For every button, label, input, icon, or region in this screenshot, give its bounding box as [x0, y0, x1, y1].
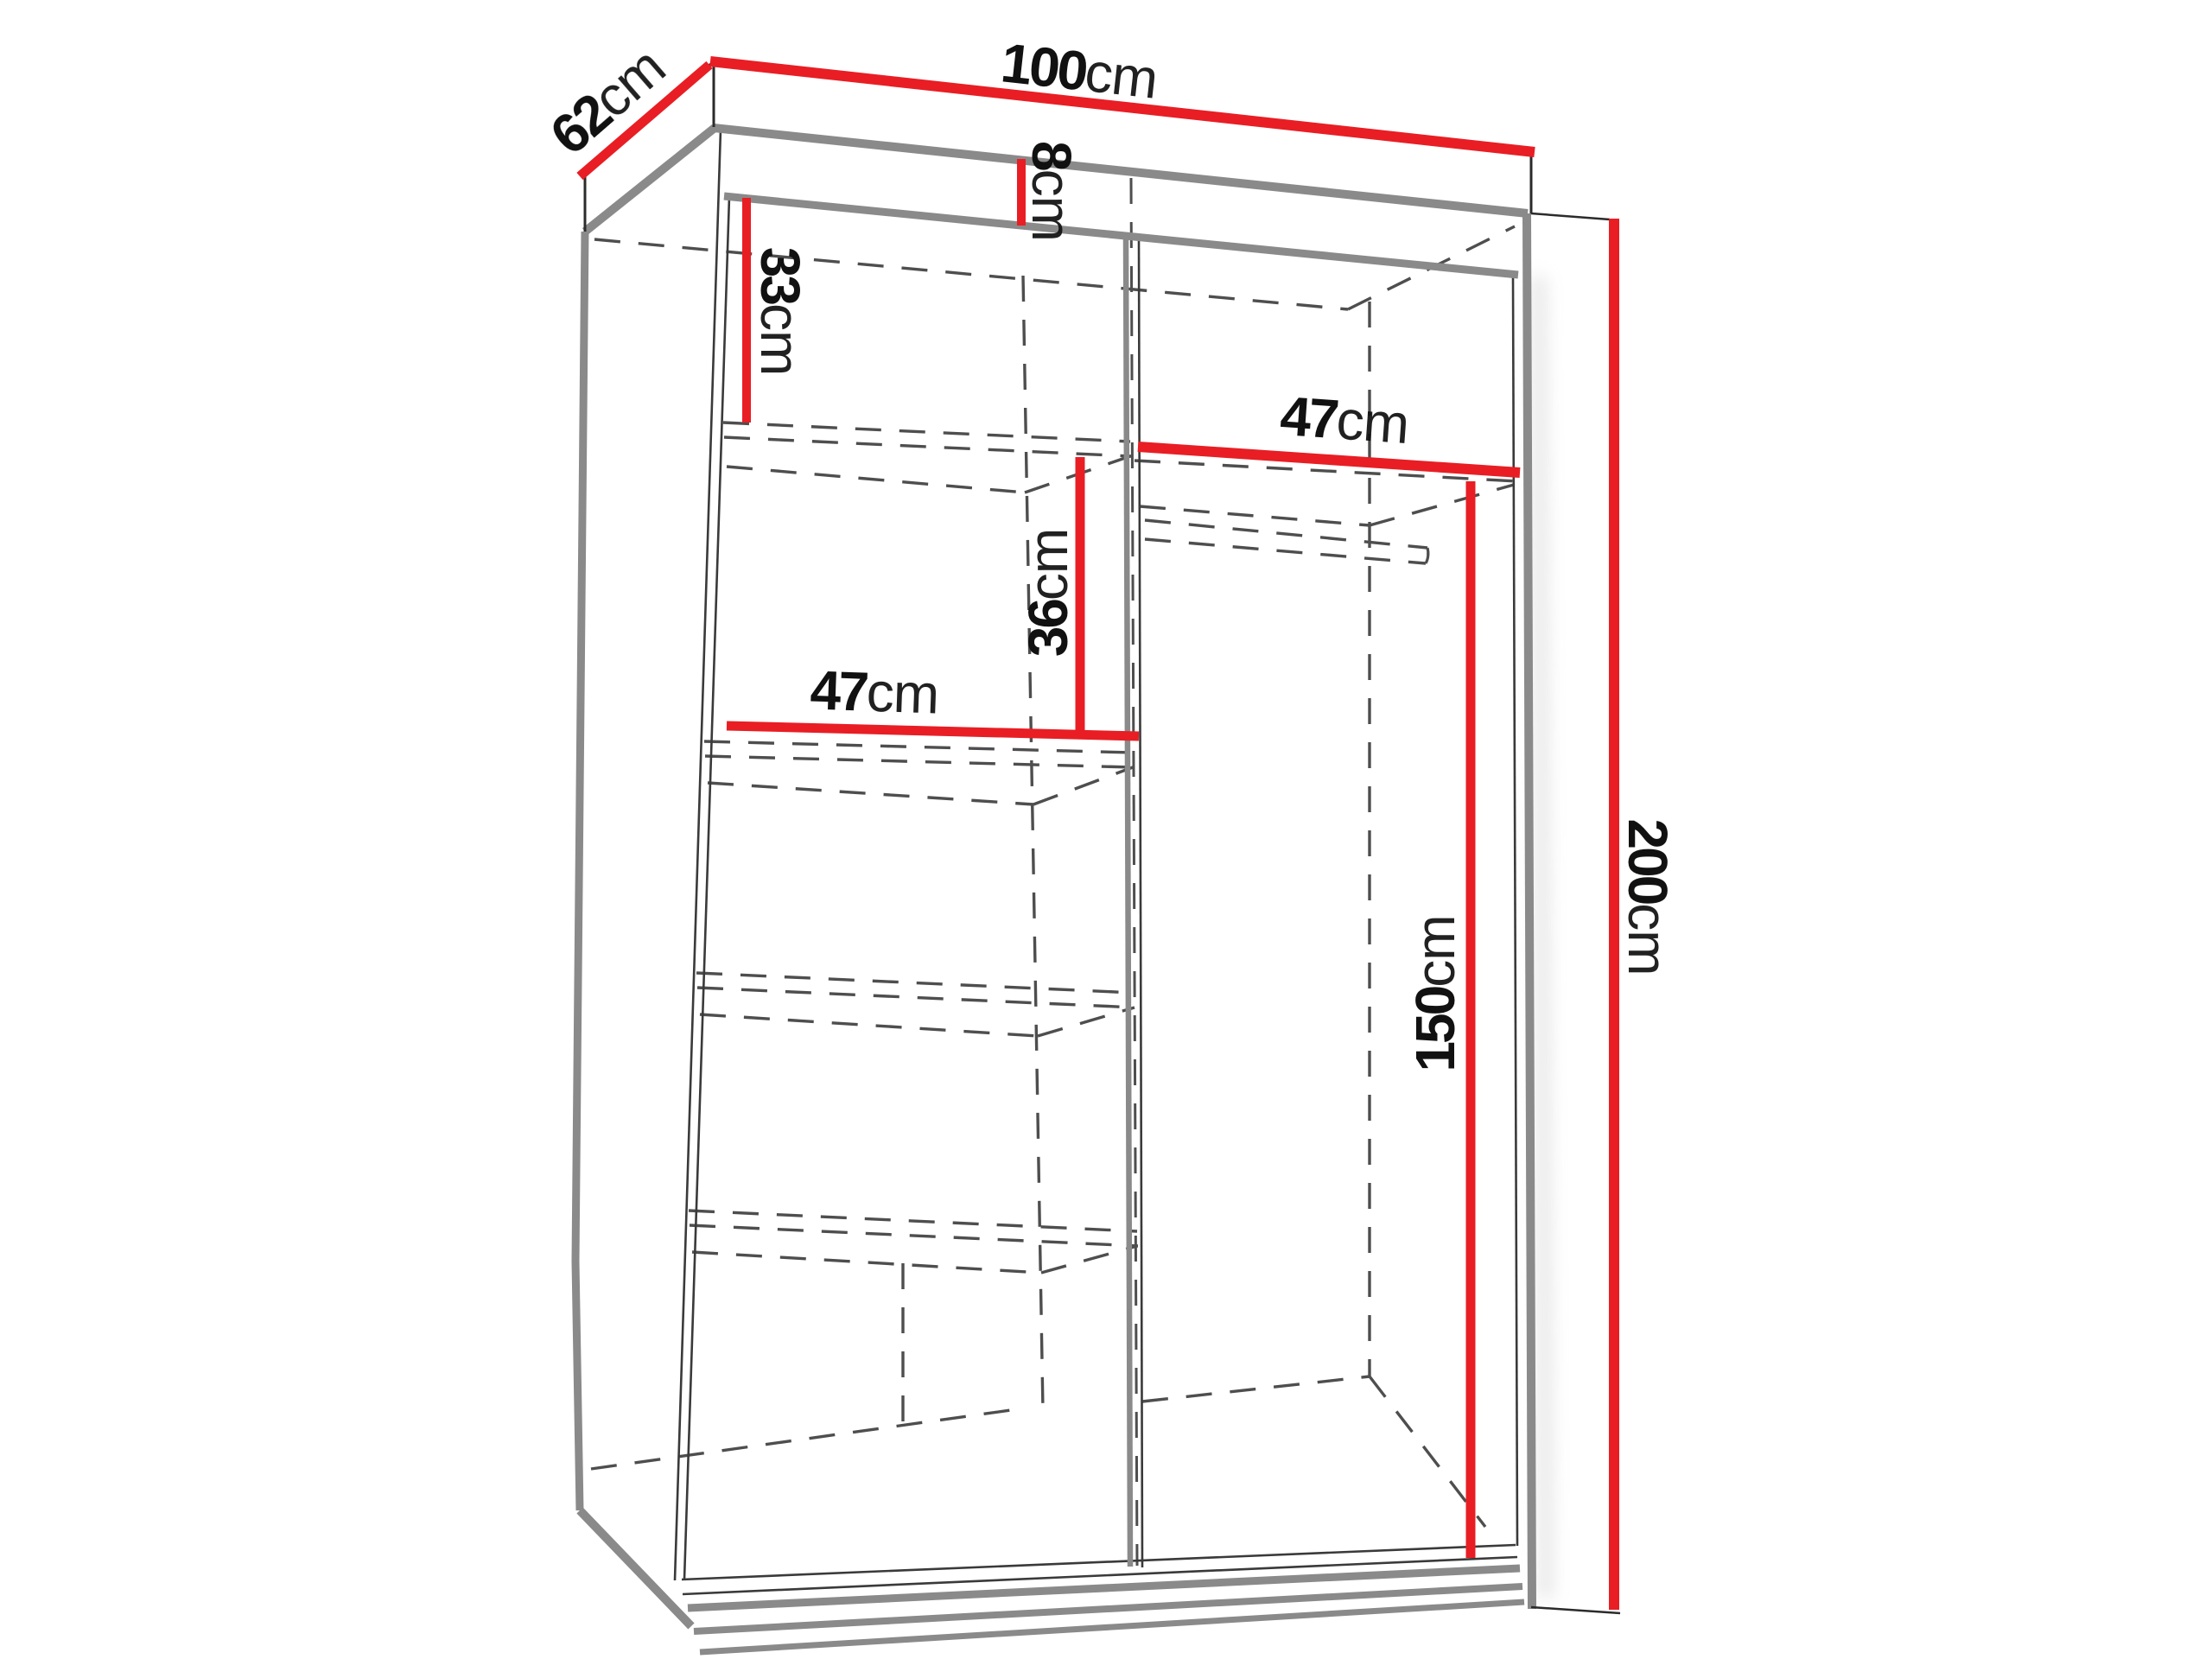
middle-shelf-gap-value: 36: [1017, 601, 1079, 657]
dimension-lines: [580, 61, 1614, 1610]
partition-front-edge: [1126, 236, 1130, 1567]
total-height-value: 200: [1617, 818, 1679, 903]
right-compartment-width-value: 47: [1278, 385, 1338, 450]
shelf-1-back-edge: [727, 467, 1025, 493]
top-rail-bottom-edge: [724, 196, 1518, 275]
hanging-space-height-unit: cm: [1404, 915, 1466, 987]
back-corner-vertical-left: [1023, 276, 1043, 1410]
right-shelf-right-corner: [1370, 485, 1514, 525]
right-front-edge: [1527, 213, 1532, 1609]
floor-shadow: [657, 1611, 1681, 1659]
hanging-rod-end-cap: [1426, 548, 1428, 563]
shelf-2-front-top-edge: [704, 741, 1133, 753]
shelf-2-back-edge: [708, 783, 1033, 804]
shelf-4-right-corner: [1041, 1246, 1137, 1273]
shelf-2-front-bottom-edge: [705, 756, 1134, 767]
left-outer-edge: [575, 232, 585, 1510]
right-wall-inner-edge: [1513, 275, 1517, 1546]
top-rail-value: 8: [1020, 141, 1083, 169]
left-wall-inner-edge-a: [675, 130, 721, 1580]
right-shelf-back-edge: [1140, 506, 1370, 525]
height-witness-line-top: [1531, 213, 1610, 219]
side-shadow: [1539, 276, 1546, 1599]
wardrobe-line-drawing: [0, 0, 2212, 1659]
hanging-space-height-value: 150: [1404, 988, 1466, 1072]
shelf-3-right-corner: [1038, 1007, 1135, 1036]
shelf-4-front-bottom-edge: [690, 1225, 1138, 1246]
shelf-3-back-edge: [700, 1014, 1038, 1036]
left-compartment-width-value: 47: [810, 658, 868, 722]
left-compartment-width-label: 47cm: [810, 662, 940, 721]
right-compartment-width-label: 47cm: [1279, 388, 1411, 452]
upper-shelf-gap-value: 33: [749, 247, 811, 303]
shelf-1-front-bottom-edge: [724, 437, 1131, 456]
height-witness-line-bottom: [1531, 1607, 1620, 1613]
floor-back-edge-right: [1142, 1376, 1370, 1402]
hanging-space-height-label: 150cm: [1408, 915, 1463, 1071]
outline-edges: [585, 62, 1620, 1613]
top-rail-label: 8cm: [1024, 141, 1079, 241]
floor-back-edge-left: [591, 1408, 1023, 1469]
left-wall-inner-edge-b: [684, 197, 729, 1580]
middle-shelf-gap-unit: cm: [1017, 529, 1079, 601]
total-height-label: 200cm: [1620, 818, 1675, 975]
left-compartment-width-unit: cm: [866, 661, 940, 726]
total-height-unit: cm: [1617, 903, 1679, 975]
hidden-interior-lines: [591, 178, 1518, 1566]
width-value: 100: [998, 31, 1089, 102]
dim-line-right-width-47: [1138, 447, 1520, 473]
shelf-2-right-corner: [1033, 767, 1133, 804]
hanging-rod-top-edge: [1145, 520, 1427, 548]
right-compartment-width-unit: cm: [1334, 388, 1410, 455]
upper-shelf-gap-label: 33cm: [753, 247, 808, 376]
wardrobe-dimension-diagram: 62cm 100cm 8cm 33cm 47cm 36cm 47cm 150cm…: [0, 0, 2212, 1659]
upper-shelf-gap-unit: cm: [749, 303, 811, 375]
middle-shelf-gap-label: 36cm: [1020, 529, 1076, 658]
partition-inner-edge: [1139, 237, 1142, 1567]
width-unit: cm: [1082, 41, 1160, 111]
carcass-frame-lines: [575, 128, 1532, 1652]
top-rail-unit: cm: [1020, 169, 1083, 241]
shelf-4-back-edge: [692, 1252, 1041, 1273]
